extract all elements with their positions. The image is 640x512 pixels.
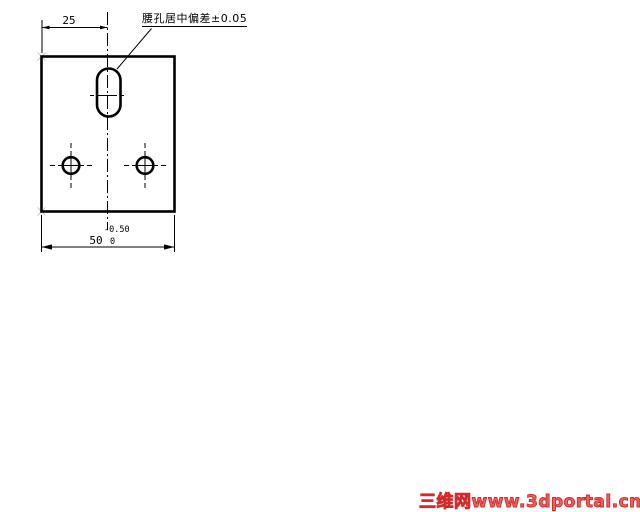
dim-50-tolerance-lower: 0 [110, 238, 115, 247]
part-drawing [0, 0, 640, 512]
dim-25-arrow-right [100, 26, 108, 30]
dim-50-value: 50 [84, 235, 108, 246]
slot-hole [97, 69, 121, 117]
dim-25-value: 25 [55, 15, 83, 26]
slot-centering-annotation: 腰孔居中偏差±0.05 [142, 12, 247, 27]
watermark-3dportal: 三维网www.3dportal.cn [419, 487, 640, 512]
dim-25-arrow-left [42, 26, 50, 30]
dim-50-tolerance-upper: -0.50 [104, 226, 130, 235]
annotation-leader-line [117, 29, 152, 70]
dim-50-arrow-left [42, 244, 53, 249]
dim-50-arrow-right [164, 244, 175, 249]
cad-drawing-page: 25 腰孔居中偏差±0.05 50 -0.50 0 三维网www.3dporta… [0, 0, 640, 512]
